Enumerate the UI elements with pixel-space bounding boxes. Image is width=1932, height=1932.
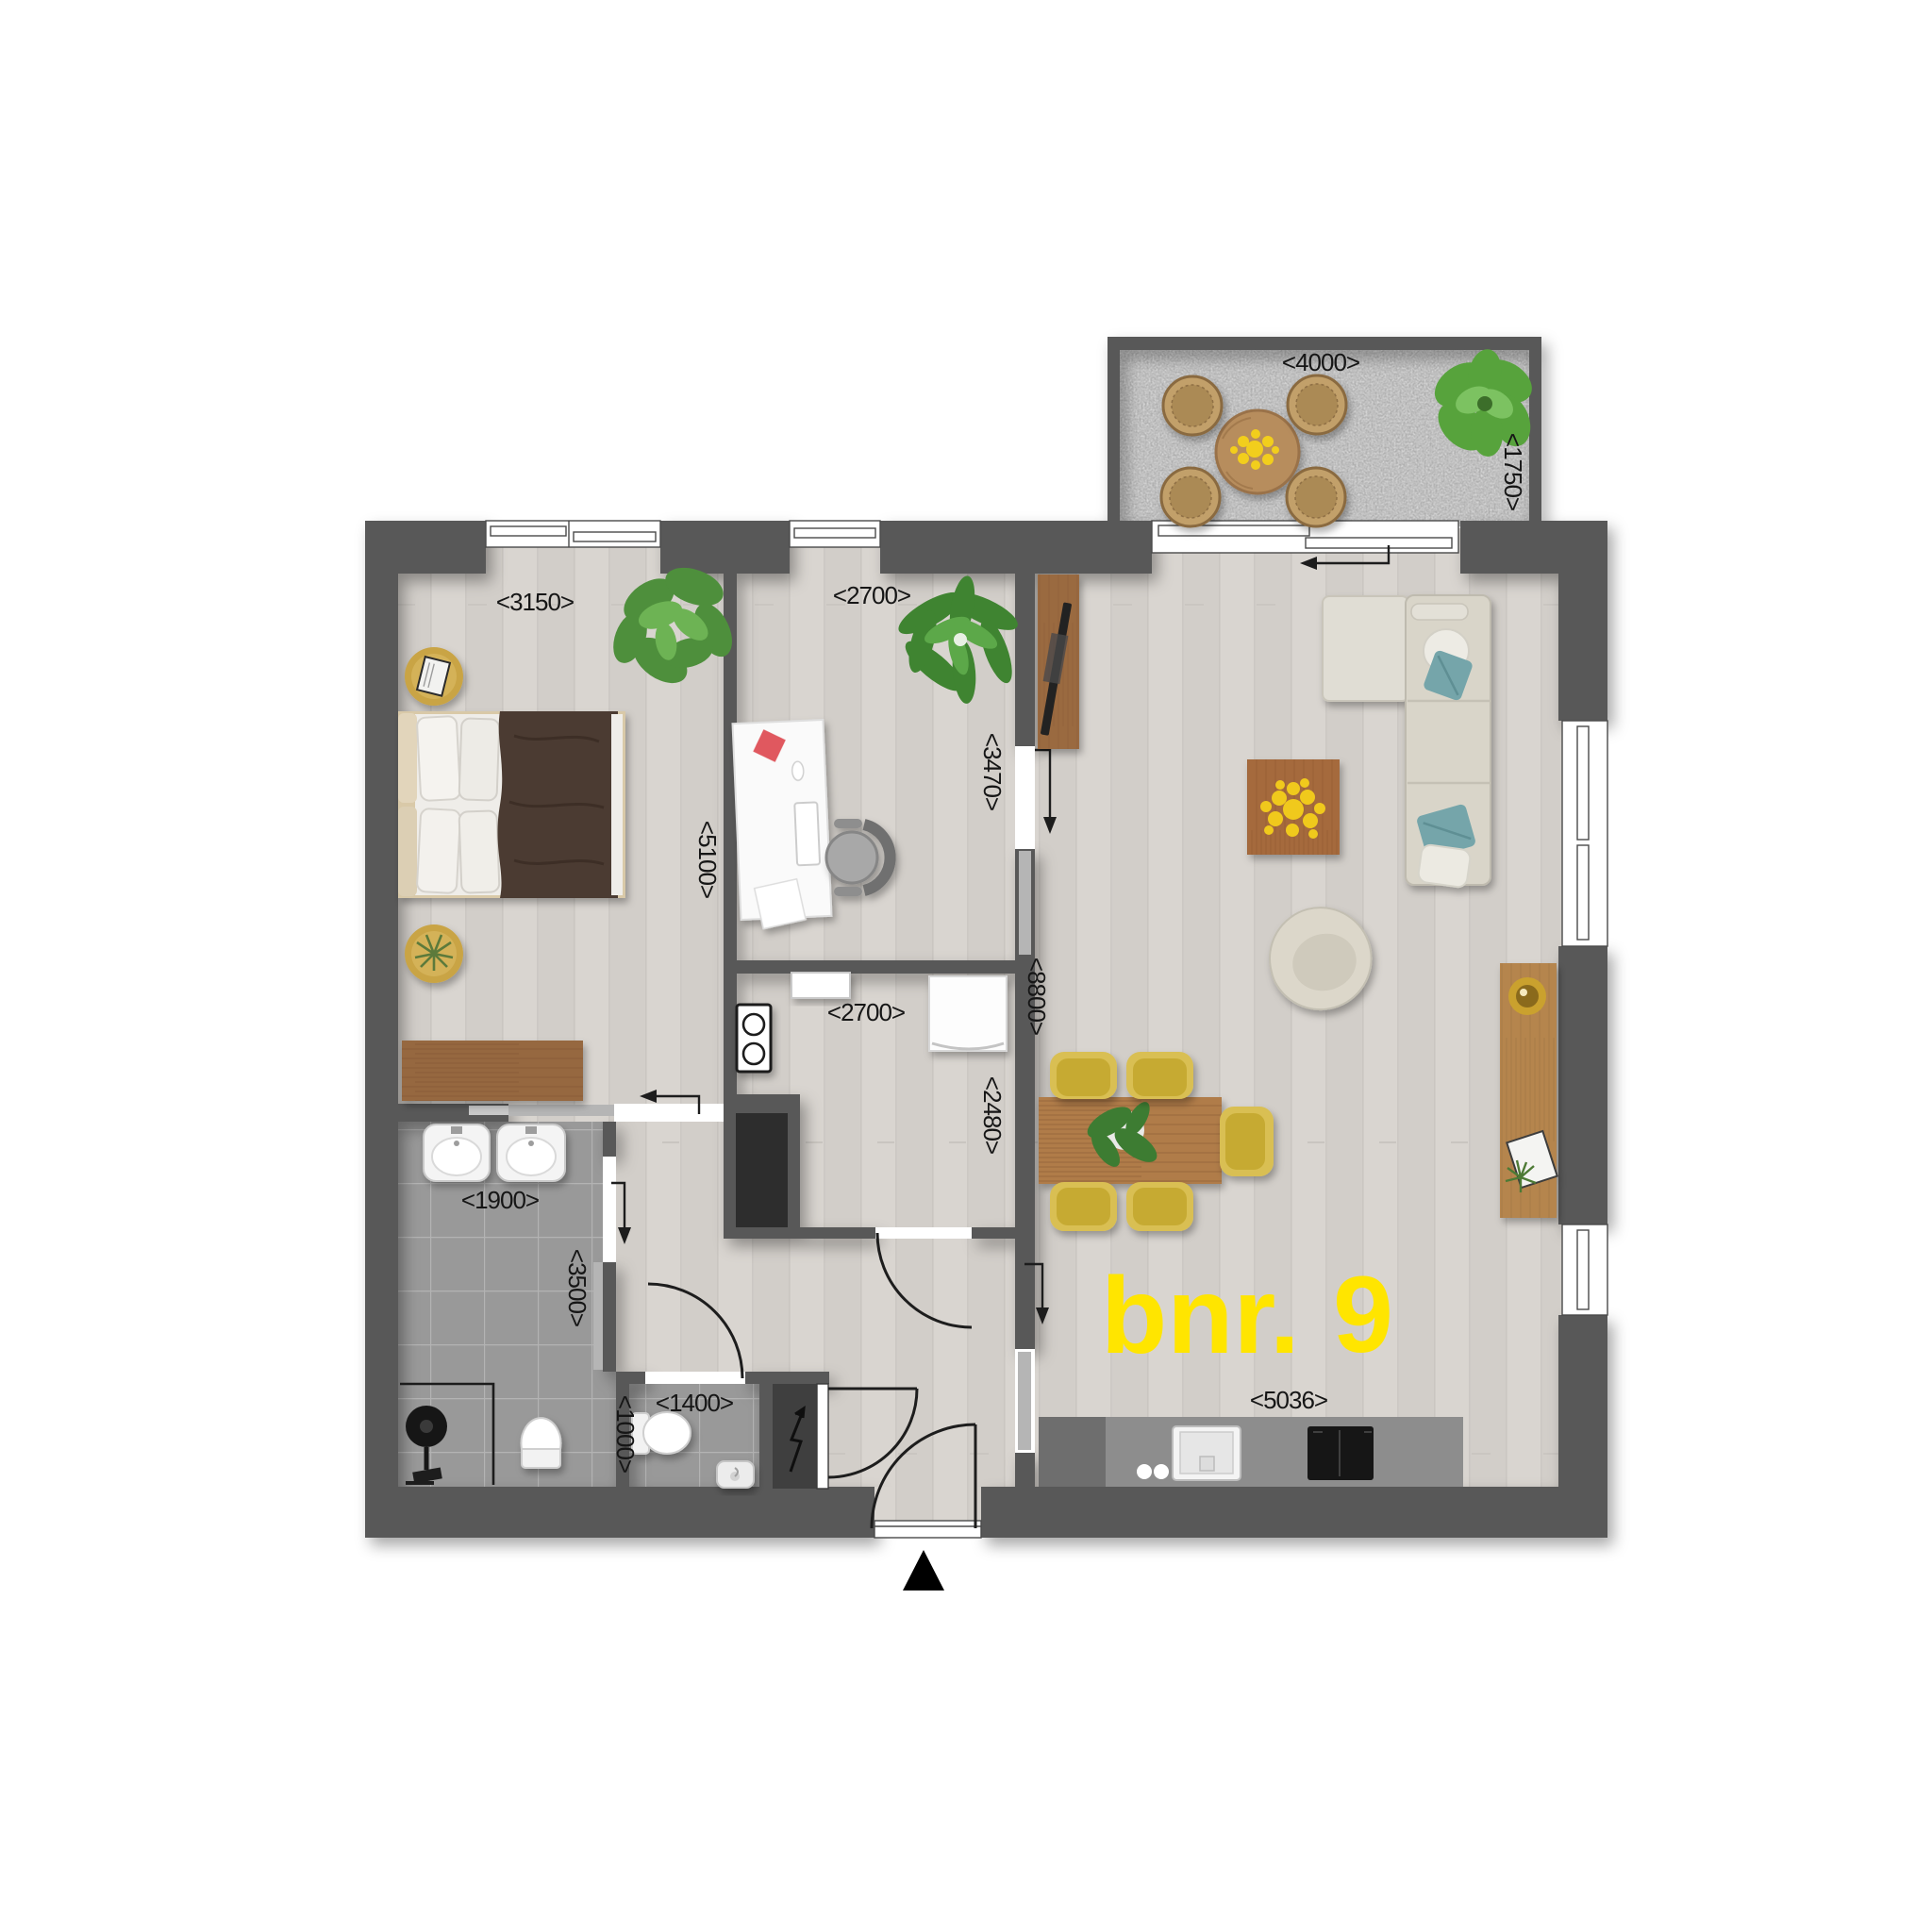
svg-text:<3150>: <3150> — [496, 588, 574, 616]
svg-text:<2480>: <2480> — [978, 1076, 1007, 1154]
svg-text:<5036>: <5036> — [1250, 1386, 1327, 1414]
svg-text:<2700>: <2700> — [827, 998, 905, 1026]
svg-text:<3500>: <3500> — [563, 1249, 591, 1326]
svg-text:<3470>: <3470> — [978, 733, 1007, 810]
svg-text:<1900>: <1900> — [461, 1186, 539, 1214]
svg-text:<4000>: <4000> — [1282, 348, 1359, 376]
svg-text:9: 9 — [1333, 1255, 1393, 1375]
svg-text:<1750>: <1750> — [1499, 433, 1527, 510]
svg-text:<5100>: <5100> — [693, 821, 722, 898]
svg-text:<8800>: <8800> — [1023, 958, 1051, 1035]
svg-text:<1400>: <1400> — [656, 1389, 733, 1417]
svg-text:<2700>: <2700> — [833, 581, 910, 609]
svg-text:bnr.: bnr. — [1101, 1256, 1300, 1376]
svg-text:<1000>: <1000> — [611, 1395, 640, 1473]
